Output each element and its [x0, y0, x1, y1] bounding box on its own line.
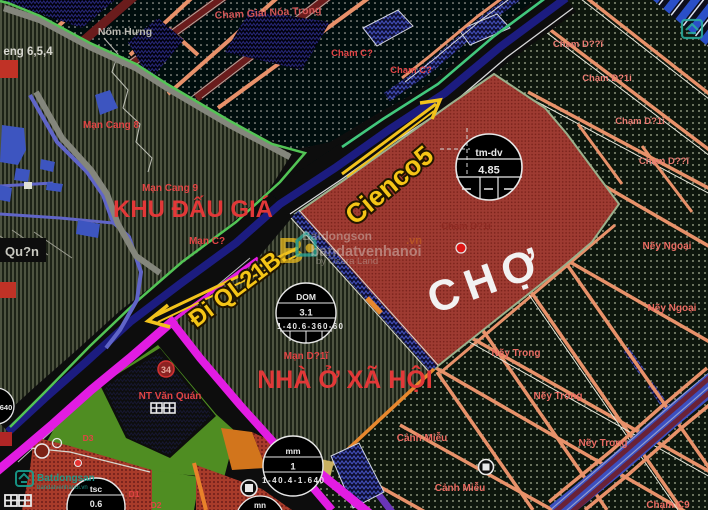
svg-text:34: 34 — [161, 365, 171, 375]
svg-text:Batdongson: Batdongson — [302, 229, 372, 243]
svg-text:3.1: 3.1 — [299, 308, 313, 319]
svg-text:Chạm D?1ĩ: Chạm D?1ĩ — [441, 221, 492, 232]
svg-text:1: 1 — [290, 462, 296, 473]
svg-text:Chạm D?1i: Chạm D?1i — [615, 116, 665, 127]
svg-text:KHU ĐẤU GIÁ: KHU ĐẤU GIÁ — [113, 195, 273, 223]
svg-text:Chạm D?1i: Chạm D?1i — [582, 73, 632, 84]
svg-text:NT Văn Quán: NT Văn Quán — [139, 391, 202, 402]
svg-text:640: 640 — [0, 403, 12, 412]
svg-text:Chạm C9: Chạm C9 — [646, 500, 690, 510]
svg-text:Nẽy Ngoại: Nẽy Ngoại — [648, 303, 697, 314]
svg-text:Chạm C?: Chạm C? — [390, 65, 432, 76]
svg-text:DOM: DOM — [296, 292, 316, 302]
svg-text:Nẽy Trong: Nẽy Trong — [579, 438, 628, 449]
svg-text:Nẽy Ngoại: Nẽy Ngoại — [643, 241, 692, 252]
svg-text:bandatvenhanoi.vn: bandatvenhanoi.vn — [37, 485, 88, 491]
svg-text:Mạn Cang 9: Mạn Cang 9 — [142, 183, 199, 194]
svg-text:mn: mn — [254, 501, 266, 510]
svg-text:eng 6,5,4: eng 6,5,4 — [3, 46, 53, 58]
svg-text:tsc: tsc — [90, 484, 103, 494]
svg-text:by Ocara Land: by Ocara Land — [316, 256, 378, 267]
svg-text:mm: mm — [285, 446, 301, 456]
svg-text:D1: D1 — [129, 489, 140, 499]
svg-text:Nẽy Trong: Nẽy Trong — [492, 348, 541, 359]
svg-text:.vn: .vn — [406, 235, 422, 247]
svg-text:Cảnh Miễu: Cảnh Miễu — [435, 481, 486, 494]
svg-text:1-40.4-1.640: 1-40.4-1.640 — [262, 476, 325, 485]
svg-text:Chạm D??ĩ: Chạm D??ĩ — [553, 39, 605, 50]
svg-text:D2: D2 — [151, 500, 162, 510]
svg-text:Qu?n: Qu?n — [5, 244, 39, 259]
svg-text:Cảnh Miễu: Cảnh Miễu — [397, 431, 448, 444]
svg-text:Nôm Hưng: Nôm Hưng — [98, 26, 152, 38]
svg-text:4.85: 4.85 — [478, 165, 499, 177]
svg-text:Mạn C?: Mạn C? — [189, 236, 225, 247]
svg-text:Mạn D?1ĩ: Mạn D?1ĩ — [284, 351, 330, 362]
svg-text:Mạn Cang 8: Mạn Cang 8 — [83, 120, 140, 131]
svg-text:Chạm C?: Chạm C? — [331, 48, 373, 59]
svg-text:Batdongsan: Batdongsan — [37, 473, 95, 484]
svg-text:Nẽy Trong: Nẽy Trong — [534, 391, 583, 402]
svg-text:NHÀ Ở XÃ HỘI: NHÀ Ở XÃ HỘI — [257, 364, 433, 394]
svg-text:Chạm D??ĩ: Chạm D??ĩ — [639, 156, 691, 167]
svg-text:D3: D3 — [83, 433, 94, 443]
svg-text:tm-dv: tm-dv — [475, 148, 503, 159]
svg-text:0.6: 0.6 — [90, 499, 103, 509]
